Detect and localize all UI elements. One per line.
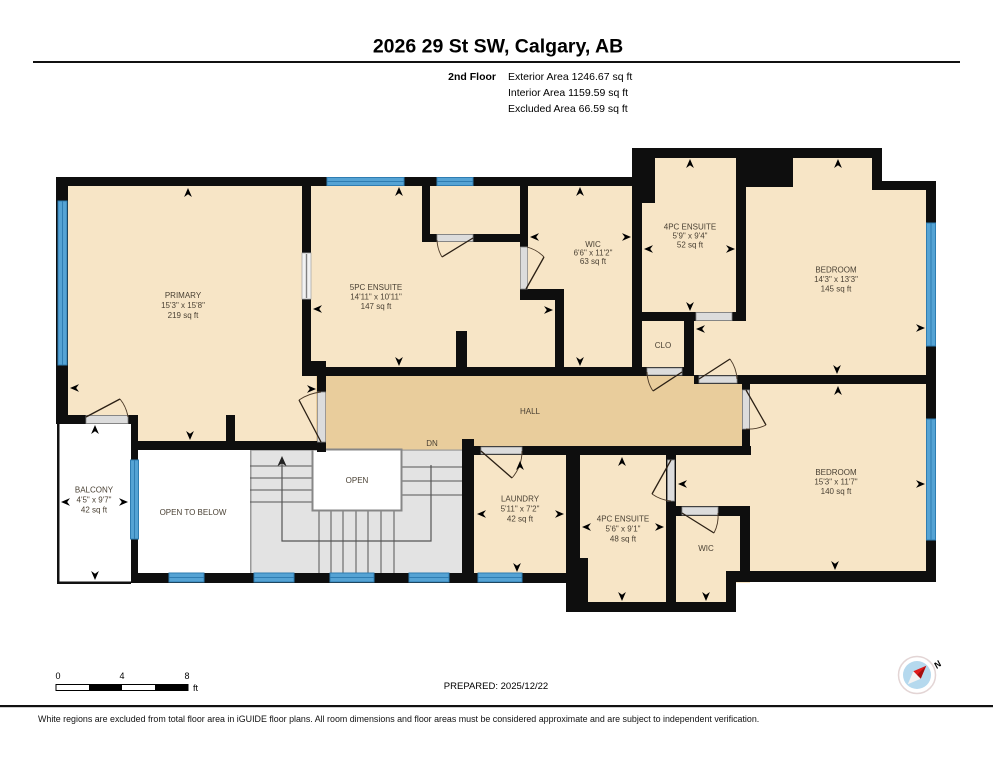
svg-text:White regions are excluded fro: White regions are excluded from total fl… xyxy=(38,714,759,724)
svg-text:PRIMARY: PRIMARY xyxy=(165,291,202,300)
svg-text:63 sq ft: 63 sq ft xyxy=(580,257,607,266)
svg-text:14'11" x 10'11": 14'11" x 10'11" xyxy=(350,293,402,302)
svg-text:145 sq ft: 145 sq ft xyxy=(821,285,852,294)
svg-text:PREPARED: 2025/12/22: PREPARED: 2025/12/22 xyxy=(444,681,548,692)
svg-text:4: 4 xyxy=(119,671,124,681)
svg-text:5'11" x 7'2": 5'11" x 7'2" xyxy=(501,505,540,514)
svg-text:140 sq ft: 140 sq ft xyxy=(821,487,852,496)
svg-text:LAUNDRY: LAUNDRY xyxy=(501,495,540,504)
svg-text:219 sq ft: 219 sq ft xyxy=(168,311,199,320)
svg-text:15'3" x 11'7": 15'3" x 11'7" xyxy=(814,478,857,487)
svg-text:5PC ENSUITE: 5PC ENSUITE xyxy=(350,283,402,292)
svg-text:4PC ENSUITE: 4PC ENSUITE xyxy=(664,223,716,232)
svg-text:42 sq ft: 42 sq ft xyxy=(81,506,108,515)
svg-text:OPEN: OPEN xyxy=(346,476,369,485)
svg-text:DN: DN xyxy=(426,439,438,448)
svg-text:15'3" x 15'8": 15'3" x 15'8" xyxy=(161,301,205,310)
svg-text:42 sq ft: 42 sq ft xyxy=(507,515,534,524)
svg-text:CLO: CLO xyxy=(655,341,671,350)
svg-text:48 sq ft: 48 sq ft xyxy=(610,535,637,544)
svg-text:147 sq ft: 147 sq ft xyxy=(361,302,392,311)
svg-text:14'3" x 13'3": 14'3" x 13'3" xyxy=(814,275,858,284)
svg-text:Interior Area 1159.59 sq ft: Interior Area 1159.59 sq ft xyxy=(508,87,628,99)
svg-text:HALL: HALL xyxy=(520,407,541,416)
svg-text:Excluded Area 66.59 sq ft: Excluded Area 66.59 sq ft xyxy=(508,103,628,115)
svg-text:5'6" x 9'1": 5'6" x 9'1" xyxy=(606,525,641,534)
svg-text:5'9" x 9'4": 5'9" x 9'4" xyxy=(673,232,708,241)
svg-text:Exterior Area 1246.67 sq ft: Exterior Area 1246.67 sq ft xyxy=(508,71,632,83)
svg-text:WIC: WIC xyxy=(698,544,714,553)
svg-text:BALCONY: BALCONY xyxy=(75,486,114,495)
svg-text:2nd Floor: 2nd Floor xyxy=(448,71,496,83)
svg-text:ft: ft xyxy=(193,683,199,693)
svg-text:BEDROOM: BEDROOM xyxy=(815,468,857,477)
svg-text:52 sq ft: 52 sq ft xyxy=(677,241,704,250)
svg-text:BEDROOM: BEDROOM xyxy=(815,266,857,275)
svg-text:4PC ENSUITE: 4PC ENSUITE xyxy=(597,515,649,524)
svg-text:2026 29 St SW, Calgary, AB: 2026 29 St SW, Calgary, AB xyxy=(373,36,623,58)
svg-text:0: 0 xyxy=(55,671,60,681)
svg-text:OPEN TO BELOW: OPEN TO BELOW xyxy=(160,508,227,517)
svg-text:8: 8 xyxy=(184,671,189,681)
svg-text:4'5" x 9'7": 4'5" x 9'7" xyxy=(77,496,112,505)
